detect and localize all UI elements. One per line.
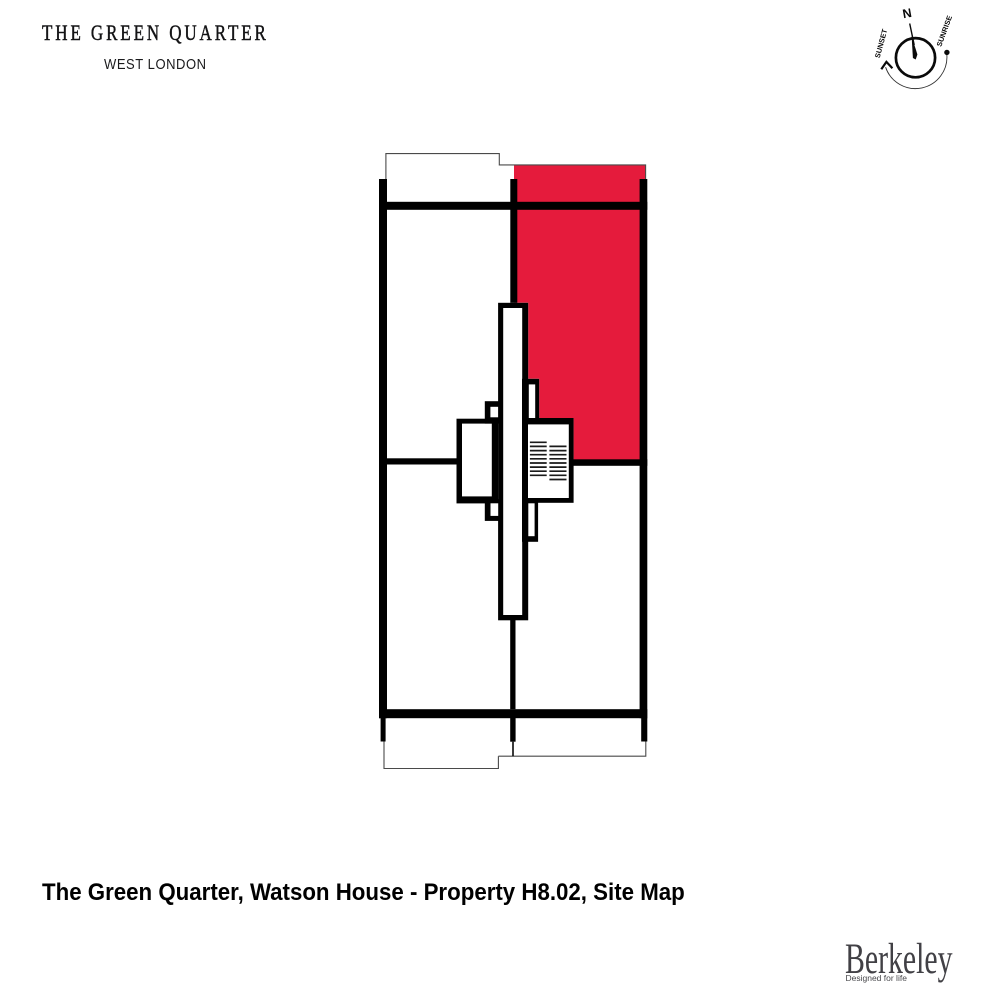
svg-text:SUNRISE: SUNRISE: [935, 14, 955, 48]
svg-text:N: N: [901, 6, 912, 21]
svg-text:SUNSET: SUNSET: [873, 28, 889, 59]
